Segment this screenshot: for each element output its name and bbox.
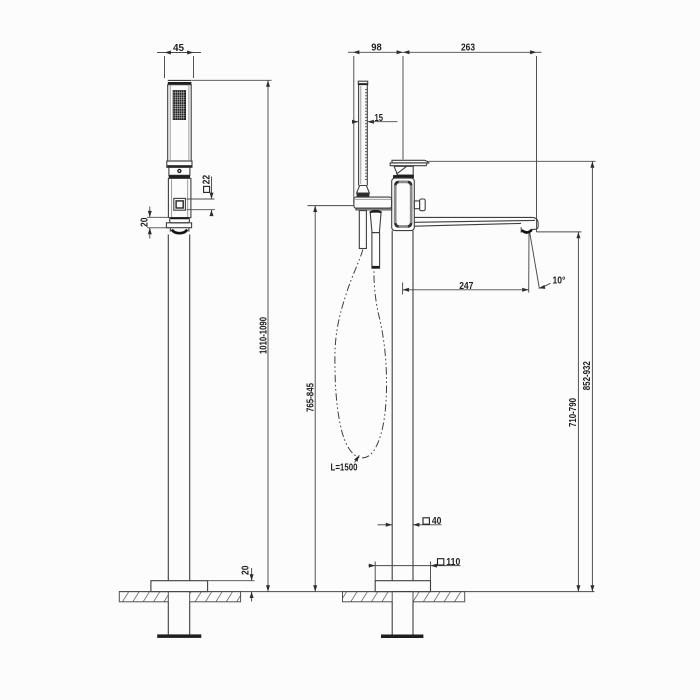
svg-text:40: 40	[432, 515, 442, 527]
svg-text:10°: 10°	[553, 274, 566, 286]
svg-text:22: 22	[201, 175, 213, 185]
svg-text:15: 15	[375, 112, 384, 124]
svg-text:20: 20	[138, 217, 150, 227]
svg-text:20: 20	[240, 565, 252, 575]
svg-text:710-790: 710-790	[567, 398, 579, 427]
svg-text:852-932: 852-932	[581, 361, 593, 390]
svg-text:45: 45	[173, 42, 184, 54]
svg-text:110: 110	[446, 556, 460, 568]
svg-text:98: 98	[371, 42, 382, 54]
svg-text:1010-1090: 1010-1090	[258, 317, 270, 354]
svg-text:263: 263	[461, 42, 475, 54]
svg-text:247: 247	[459, 280, 473, 292]
svg-text:L=1500: L=1500	[331, 462, 358, 474]
svg-text:765-845: 765-845	[305, 383, 317, 412]
